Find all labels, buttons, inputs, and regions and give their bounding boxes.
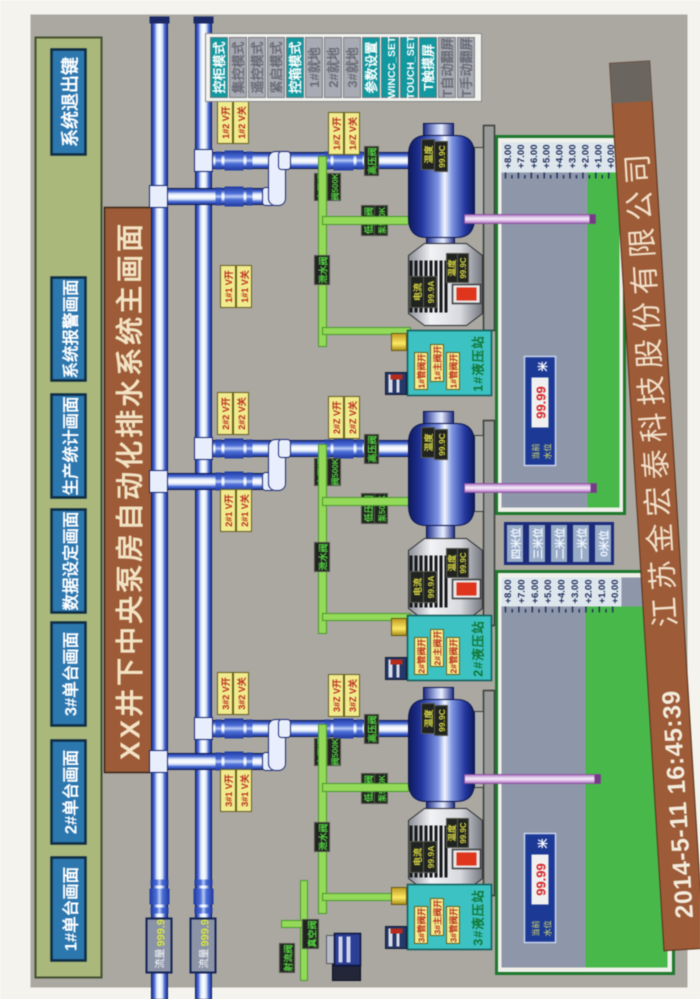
svg-text:3#Z V关: 3#Z V关 (347, 678, 358, 711)
svg-text:参数设置: 参数设置 (364, 41, 379, 93)
svg-text:2#单台画面: 2#单台画面 (60, 749, 80, 833)
svg-text:控柜模式: 控柜模式 (212, 41, 227, 93)
svg-text:数据设定画面: 数据设定画面 (60, 511, 80, 610)
svg-text:3#管阀开: 3#管阀开 (416, 907, 426, 942)
svg-text:0米位: 0米位 (597, 529, 610, 556)
svg-text:+3.00: +3.00 (570, 579, 581, 603)
svg-text:+6.00: +6.00 (528, 144, 539, 168)
svg-text:2#2 V关: 2#2 V关 (236, 397, 247, 430)
svg-text:遥控模式: 遥控模式 (250, 41, 265, 93)
svg-text:集控模式: 集控模式 (231, 41, 246, 94)
svg-text:T手动翻屏: T手动翻屏 (459, 37, 474, 97)
svg-text:当前: 当前 (530, 920, 540, 936)
svg-text:高压阀: 高压阀 (366, 435, 377, 462)
svg-text:泄水阀: 泄水阀 (317, 543, 328, 570)
svg-text:系统退出键: 系统退出键 (59, 57, 80, 147)
svg-text:3#就地: 3#就地 (345, 47, 360, 87)
svg-text:99.9C: 99.9C (436, 709, 446, 732)
svg-text:1#管阀开: 1#管阀开 (416, 353, 426, 388)
svg-text:99.9C: 99.9C (459, 257, 468, 279)
svg-text:电流: 电流 (411, 577, 422, 595)
svg-text:+4.00: +4.00 (554, 144, 565, 168)
svg-text:+5.00: +5.00 (541, 144, 552, 168)
svg-text:+2.00: +2.00 (580, 144, 591, 168)
svg-text:+0.00: +0.00 (610, 579, 621, 603)
svg-text:3#1 V关: 3#1 V关 (239, 774, 250, 807)
svg-text:3#1 V开: 3#1 V开 (224, 774, 234, 807)
svg-text:阀500K: 阀500K (329, 738, 339, 765)
svg-text:1#就地: 1#就地 (307, 47, 322, 87)
svg-text:电流: 电流 (411, 282, 422, 300)
svg-text:1#管阀开: 1#管阀开 (448, 353, 458, 388)
svg-text:射流阀: 射流阀 (282, 944, 293, 972)
svg-text:2#1 V关: 2#1 V关 (239, 494, 250, 527)
svg-text:2#管阀开: 2#管阀开 (416, 638, 426, 673)
svg-text:1#Z V开: 1#Z V开 (332, 116, 342, 149)
svg-text:+8.00: +8.00 (503, 144, 514, 168)
svg-text:温度: 温度 (422, 144, 433, 163)
svg-text:99.9C: 99.9C (459, 822, 468, 844)
svg-text:1#1 V关: 1#1 V关 (239, 270, 250, 303)
svg-text:一米位: 一米位 (575, 527, 588, 559)
svg-text:XX井下中央泵房自动化排水系统主画面: XX井下中央泵房自动化排水系统主画面 (113, 220, 145, 759)
svg-text:T自动翻屏: T自动翻屏 (440, 37, 455, 97)
svg-text:温度: 温度 (422, 708, 433, 727)
svg-text:流量: 流量 (153, 948, 166, 968)
svg-text:+1.00: +1.00 (593, 144, 604, 168)
svg-text:3#2 V关: 3#2 V关 (236, 677, 247, 710)
svg-text:温度: 温度 (422, 432, 433, 451)
svg-text:1#液压站: 1#液压站 (470, 335, 485, 391)
svg-text:3#主阀开: 3#主阀开 (432, 899, 442, 934)
svg-text:阀500K: 阀500K (329, 173, 339, 200)
svg-text:+5.00: +5.00 (543, 579, 554, 603)
svg-text:2#液压站: 2#液压站 (470, 620, 485, 676)
svg-text:二米位: 二米位 (553, 527, 566, 559)
svg-text:温度: 温度 (447, 824, 457, 842)
svg-text:水位: 水位 (542, 920, 552, 936)
svg-text:2#就地: 2#就地 (326, 47, 341, 87)
svg-text:高压阀: 高压阀 (366, 715, 377, 742)
svg-text:1#Z V关: 1#Z V关 (347, 116, 358, 149)
svg-text:紧启模式: 紧启模式 (269, 41, 284, 93)
svg-text:99.9C: 99.9C (459, 552, 468, 574)
svg-text:温度: 温度 (447, 554, 457, 572)
svg-text:水位: 水位 (542, 443, 552, 459)
svg-text:999.9: 999.9 (155, 918, 167, 946)
svg-text:3#2 V开: 3#2 V开 (221, 677, 231, 710)
svg-text:99.9A: 99.9A (425, 280, 435, 303)
svg-text:1#2 V开: 1#2 V开 (221, 106, 231, 139)
svg-text:1#1 V开: 1#1 V开 (224, 270, 234, 303)
svg-text:+2.00: +2.00 (583, 579, 594, 603)
svg-text:温度: 温度 (447, 259, 457, 277)
svg-text:2#Z V开: 2#Z V开 (332, 400, 342, 433)
svg-text:+7.00: +7.00 (515, 144, 526, 168)
svg-text:+7.00: +7.00 (516, 579, 527, 603)
svg-text:WINCC_SET: WINCC_SET (386, 35, 398, 97)
svg-text:系统报警画面: 系统报警画面 (60, 279, 80, 378)
svg-text:999.9: 999.9 (199, 918, 211, 946)
svg-text:高压阀: 高压阀 (366, 147, 377, 174)
svg-text:3#单台画面: 3#单台画面 (60, 631, 80, 715)
svg-text:米: 米 (536, 837, 549, 848)
svg-text:阀500K: 阀500K (329, 458, 339, 485)
svg-text:99.99: 99.99 (533, 386, 548, 419)
svg-text:1#2 V关: 1#2 V关 (236, 106, 247, 139)
svg-text:3#液压站: 3#液压站 (470, 889, 485, 945)
svg-text:米: 米 (536, 360, 549, 371)
svg-text:3#管阀开: 3#管阀开 (448, 907, 458, 942)
svg-text:3#Z V开: 3#Z V开 (332, 678, 342, 711)
svg-text:+8.00: +8.00 (503, 579, 514, 603)
svg-text:2#2 V开: 2#2 V开 (221, 397, 231, 430)
svg-text:流量: 流量 (197, 948, 210, 968)
svg-text:+3.00: +3.00 (567, 144, 578, 168)
svg-text:2#管阀开: 2#管阀开 (448, 638, 458, 673)
svg-text:泄水阀: 泄水阀 (317, 256, 328, 283)
svg-text:+4.00: +4.00 (556, 579, 567, 603)
svg-text:99.9A: 99.9A (425, 845, 435, 868)
svg-text:TOUCH_SET: TOUCH_SET (405, 35, 417, 99)
svg-text:99.9A: 99.9A (425, 575, 435, 598)
svg-text:泄水阀: 泄水阀 (317, 823, 328, 850)
svg-text:四米位: 四米位 (509, 527, 522, 559)
svg-text:+6.00: +6.00 (529, 579, 540, 603)
svg-text:1#主阀开: 1#主阀开 (432, 345, 442, 380)
svg-text:电流: 电流 (411, 847, 422, 865)
svg-text:+1.00: +1.00 (596, 579, 607, 603)
svg-text:真空阀: 真空阀 (306, 920, 317, 947)
svg-text:99.9C: 99.9C (436, 145, 446, 168)
svg-text:2#1 V开: 2#1 V开 (224, 494, 234, 527)
svg-text:三米位: 三米位 (531, 527, 544, 559)
svg-text:99.99: 99.99 (533, 863, 548, 896)
svg-text:2#Z V关: 2#Z V关 (347, 400, 358, 433)
svg-text:99.9C: 99.9C (436, 433, 446, 456)
svg-text:生产统计画面: 生产统计画面 (60, 396, 80, 495)
svg-text:当前: 当前 (530, 443, 540, 459)
svg-text:1#单台画面: 1#单台画面 (60, 866, 80, 950)
svg-text:T触摸屏: T触摸屏 (421, 44, 436, 91)
svg-text:2#主阀开: 2#主阀开 (432, 630, 442, 665)
svg-text:控箱模式: 控箱模式 (288, 41, 303, 93)
